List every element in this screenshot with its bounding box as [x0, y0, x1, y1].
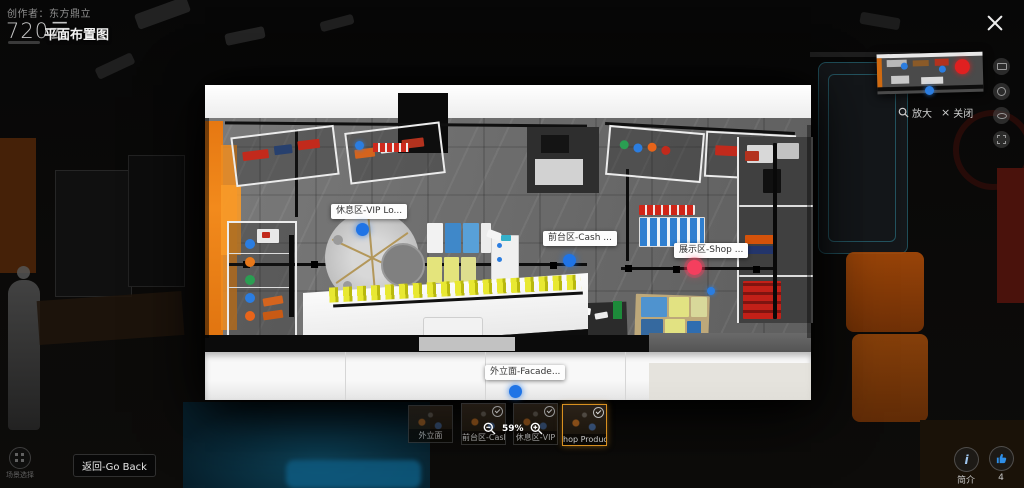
- viewer-stage: 创作者：东方鼎立 720云 平面布置图: [0, 0, 1024, 488]
- bg-jacket-trim: [828, 74, 896, 242]
- minimap-fixture: [921, 77, 943, 85]
- bg-display-shelf: [55, 170, 132, 297]
- zoom-in-icon[interactable]: [530, 422, 543, 435]
- bg-ceiling-light: [134, 0, 191, 30]
- plan-edge-shade: [205, 118, 209, 338]
- plan-edge-shade: [807, 125, 811, 338]
- check-icon: [544, 406, 555, 417]
- like-button[interactable]: [989, 446, 1014, 471]
- bg-ceiling-light: [224, 26, 266, 46]
- like-icon: [995, 452, 1008, 465]
- cashier-screen: [541, 135, 569, 153]
- bg-ceiling-light: [94, 52, 135, 80]
- display-rack: [605, 125, 705, 183]
- plan-wall-line: [289, 235, 294, 317]
- minimap-hotspot-dot-active[interactable]: [955, 59, 970, 74]
- info-button[interactable]: i: [954, 447, 979, 472]
- bg-orange-wall: [0, 138, 36, 273]
- minimap-hotspot-dot[interactable]: [939, 66, 946, 73]
- thumbnail-label: 外立面: [409, 429, 452, 442]
- bg-display-shelf: [128, 155, 185, 287]
- magnifier-icon: [898, 107, 909, 118]
- small-hotspot-dot[interactable]: [355, 141, 364, 150]
- green-chip: [613, 301, 622, 319]
- minimap-hotspot-dot[interactable]: [925, 86, 934, 95]
- minimap-hotspot-dot[interactable]: [901, 63, 908, 70]
- hotspot-label-shop[interactable]: 展示区-Shop ...: [674, 243, 748, 258]
- brand-logo-subtext: [8, 41, 40, 44]
- info-label: 简介: [951, 473, 981, 486]
- back-button[interactable]: 返回-Go Back: [73, 454, 156, 477]
- minimap-close-x-icon: ×: [941, 106, 950, 119]
- bg-ceiling-light: [859, 12, 900, 31]
- gyroscope-icon[interactable]: [993, 107, 1010, 124]
- zoom-control: 59%: [483, 422, 543, 435]
- like-count: 4: [988, 473, 1014, 483]
- thumbnail-facade[interactable]: 外立面: [408, 405, 453, 443]
- minimap-enlarge-label: 放大: [912, 105, 932, 120]
- vr-mode-icon[interactable]: [993, 58, 1010, 75]
- bg-orange-shorts: [852, 334, 928, 422]
- minimap-close-label: 关闭: [953, 105, 973, 120]
- bg-ceiling-light: [319, 14, 354, 32]
- hotspot-dot-cash[interactable]: [563, 254, 576, 267]
- hotspot-label-cash[interactable]: 前台区-Cash ...: [543, 231, 617, 246]
- track-node: [311, 261, 318, 268]
- hotspot-label-facade[interactable]: 外立面-Facade...: [485, 365, 565, 380]
- hotspot-label-vip[interactable]: 休息区-VIP Lo...: [331, 204, 407, 219]
- minimap-close-button[interactable]: × 关闭: [941, 105, 973, 120]
- left-shelf-unit: [227, 221, 297, 337]
- hotspot-dot-shop[interactable]: [687, 260, 702, 275]
- minimap-enlarge-button[interactable]: 放大: [898, 105, 932, 120]
- check-icon: [492, 406, 503, 417]
- bg-wood-counter: [37, 291, 185, 345]
- fullscreen-icon[interactable]: [993, 131, 1010, 148]
- facade-right-tint: [649, 363, 811, 400]
- minimap-fixture: [913, 60, 929, 66]
- floorplan-panel[interactable]: 休息区-VIP Lo... 前台区-Cash ... 展示区-Shop ... …: [205, 85, 811, 400]
- zoom-percent: 59%: [502, 424, 524, 434]
- entrance-threshold: [419, 337, 515, 351]
- plan-wall-line: [626, 169, 629, 261]
- right-wall-shelf: [737, 137, 813, 323]
- cashier-desk: [535, 159, 583, 185]
- bg-mannequin: [8, 280, 40, 430]
- track-node: [550, 262, 557, 269]
- small-hotspot-dot[interactable]: [707, 287, 715, 295]
- zoom-out-icon[interactable]: [483, 422, 496, 435]
- plan-top-wall: [205, 85, 811, 118]
- page-title: 平面布置图: [44, 24, 109, 43]
- bg-red-banner: [997, 168, 1024, 303]
- hotspot-dot-vip[interactable]: [356, 223, 369, 236]
- minimap-orange-wall: [877, 58, 883, 90]
- track-node: [673, 266, 680, 273]
- check-icon: [593, 407, 604, 418]
- info-icon: i: [964, 453, 968, 467]
- track-node: [753, 266, 760, 273]
- track-node: [625, 265, 632, 272]
- minimap-fixture: [891, 76, 909, 84]
- scene-select-button[interactable]: [9, 447, 31, 469]
- hotspot-dot-facade[interactable]: [509, 385, 522, 398]
- red-product-row: [373, 143, 409, 152]
- thumbnail-label: hop Products: [563, 434, 606, 445]
- share-icon[interactable]: [993, 83, 1010, 100]
- scene-select-label: 场景选择: [2, 470, 38, 480]
- thumbnail-shop-products[interactable]: hop Products: [562, 404, 607, 446]
- close-icon[interactable]: [984, 12, 1006, 34]
- bg-mannequin-head: [17, 266, 30, 279]
- bg-orange-shorts: [846, 252, 924, 332]
- bg-floor-pool-glow: [286, 460, 421, 488]
